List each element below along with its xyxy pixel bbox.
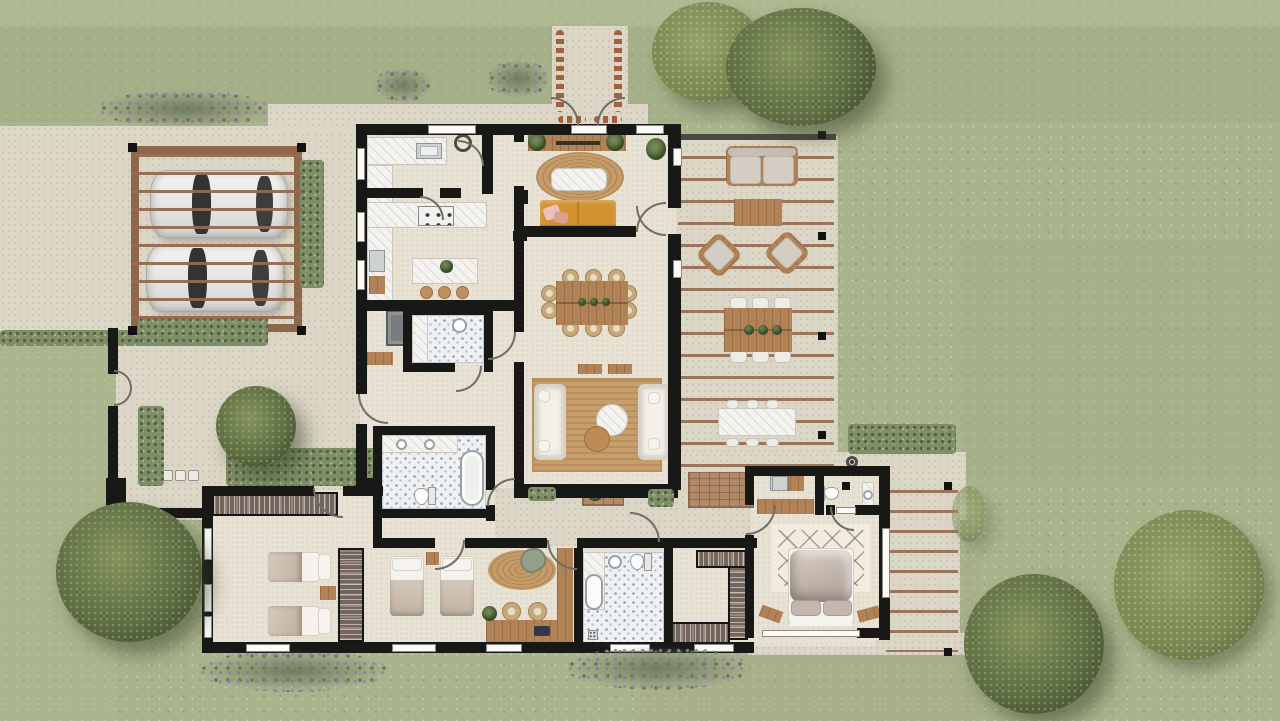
- window: [204, 584, 212, 612]
- tree-courtyard: [216, 386, 296, 466]
- kitchen-sink-basin: [420, 146, 438, 156]
- shower-drain: [588, 630, 598, 640]
- window: [486, 644, 522, 652]
- wall-master-left-a: [745, 466, 754, 505]
- sofa-split: [577, 202, 579, 228]
- prep-sink: [369, 250, 385, 272]
- wall-wingtop-r1: [373, 538, 435, 548]
- deck-coffee-table: [734, 199, 782, 226]
- sofa-pillow: [538, 440, 550, 452]
- window: [673, 260, 682, 278]
- bath2-tub: [585, 574, 603, 610]
- wall-bath1-right-a: [486, 426, 495, 490]
- bath1-vanity: [382, 435, 458, 453]
- wall-bath1-left: [373, 426, 382, 518]
- deck-bar-table: [718, 408, 796, 436]
- window: [204, 616, 212, 638]
- carport-pergola-slats: [131, 154, 302, 326]
- wall-x515-low-b: [514, 362, 524, 490]
- wall-wingtop-r3: [577, 538, 757, 548]
- nook-chair: [502, 602, 521, 621]
- lounge-corner-plant: [646, 138, 666, 160]
- wall-bath2-right: [664, 548, 673, 648]
- lavender-driveway: [98, 90, 270, 128]
- wood-bench: [578, 364, 602, 374]
- bar-stool: [726, 438, 739, 447]
- bed1-blanket: [268, 552, 302, 582]
- front-door: [571, 125, 607, 134]
- window: [428, 125, 476, 134]
- round-side-table: [584, 426, 610, 452]
- wc-basin: [863, 490, 873, 500]
- master-pillow: [791, 600, 821, 616]
- bed1-pillow: [318, 554, 331, 580]
- table-plant: [578, 298, 586, 306]
- wall-closet-master: [745, 548, 754, 638]
- island-stool: [438, 286, 451, 299]
- island-stool: [420, 286, 433, 299]
- console-slot: [556, 141, 600, 145]
- master-closet-bottom: [668, 622, 730, 644]
- bath1-basin: [396, 439, 407, 450]
- tree-southeast-1: [964, 574, 1104, 714]
- ac-unit: [175, 470, 186, 481]
- window: [204, 528, 212, 560]
- wall-lounge-bottom: [520, 226, 636, 237]
- laundry-sink: [772, 476, 788, 491]
- deck-sofa-back: [728, 148, 796, 156]
- tree-southeast-2: [1114, 510, 1264, 660]
- master-pillow: [823, 600, 852, 616]
- wood-shelf: [369, 276, 385, 294]
- powder-marble: [412, 315, 428, 363]
- tree-southwest: [56, 502, 202, 642]
- bar-stool: [766, 438, 779, 447]
- lavender-south-1: [198, 650, 388, 692]
- master-slider-window: [882, 528, 890, 598]
- wall-scullery-a: [363, 188, 423, 198]
- wall-kitchen-right: [514, 186, 524, 314]
- master-planter: [848, 424, 956, 454]
- table-plant: [602, 298, 610, 306]
- wall-master-top: [751, 466, 890, 476]
- wall-x515-low-a: [514, 314, 524, 332]
- wall-notch-2: [513, 231, 527, 241]
- window: [357, 148, 365, 180]
- outdoor-shower-head: [850, 460, 854, 464]
- side-deck-slats: [886, 490, 958, 652]
- carport-post: [128, 326, 137, 335]
- island-plant: [440, 260, 453, 273]
- window: [673, 148, 682, 166]
- bed2-pillow: [318, 608, 331, 634]
- lounge-coffee-table: [551, 168, 607, 191]
- bed4-blanket: [440, 580, 474, 616]
- deck-post: [818, 131, 826, 139]
- court-bed-left: [138, 406, 164, 486]
- wall-scullery-b: [440, 188, 461, 198]
- master-bed-foot: [790, 616, 852, 626]
- wall-bath1-top: [373, 426, 495, 435]
- grass-band-top: [0, 0, 1280, 26]
- nook-laptop: [534, 626, 550, 636]
- deck-post: [818, 431, 826, 439]
- hall-bench: [367, 352, 393, 365]
- master-patio-slider: [762, 630, 860, 637]
- carport-post: [297, 143, 306, 152]
- bed3-blanket: [390, 580, 424, 616]
- window: [392, 644, 436, 652]
- window: [357, 212, 365, 242]
- bar-stool: [746, 438, 759, 447]
- wall-powder-bottom: [403, 363, 455, 372]
- deck-top-beam: [676, 134, 836, 140]
- wall-court-left-a: [108, 328, 118, 374]
- nook-chair: [528, 602, 547, 621]
- wall-planter-1: [528, 487, 556, 501]
- deck-post: [818, 232, 826, 240]
- powder-basin: [452, 318, 467, 333]
- tree-entry-right: [726, 8, 876, 126]
- carport-post: [128, 143, 137, 152]
- wall-right-upper: [668, 124, 681, 208]
- wall-powder-top: [403, 306, 493, 315]
- closet-divider: [338, 548, 364, 642]
- side-deck-post: [944, 648, 952, 656]
- window: [636, 125, 664, 134]
- lavender-south-2: [566, 646, 750, 690]
- grass-patch-right: [960, 240, 1280, 480]
- deck-sofa-cushion: [763, 156, 794, 184]
- bath2-toilet-tank: [644, 553, 652, 571]
- bath1-toilet-tank: [428, 487, 436, 505]
- island-stool: [456, 286, 469, 299]
- master-closet-top: [696, 550, 750, 568]
- wood-bench: [608, 364, 632, 374]
- outdoor-table-plant: [758, 325, 768, 335]
- carport-beam-top: [131, 146, 302, 154]
- master-duvet: [790, 550, 852, 602]
- bed3-pillow: [392, 558, 422, 571]
- side-bush: [952, 486, 986, 542]
- carport-planting-strip: [300, 160, 324, 288]
- console-plant-left: [528, 133, 546, 151]
- ac-unit: [188, 470, 199, 481]
- bath1-basin: [424, 439, 435, 450]
- side-deck-post: [944, 482, 952, 490]
- outdoor-table-plant: [772, 325, 782, 335]
- wall-wing-top-b: [343, 486, 383, 496]
- wall-notch-1: [514, 190, 528, 204]
- wall-bath1-bottom: [373, 509, 495, 518]
- wall-master-left-b: [745, 535, 754, 548]
- table-plant: [590, 298, 598, 306]
- lavender-walk-right: [486, 60, 550, 98]
- wall-court-right-up: [356, 356, 367, 394]
- wall-vestibule: [482, 124, 493, 194]
- wall-x515-stub: [514, 124, 524, 142]
- bath1-tub-inner: [465, 456, 479, 500]
- laundry-board: [790, 476, 804, 491]
- wall-master-bottom: [857, 628, 890, 638]
- outdoor-table-plant: [744, 325, 754, 335]
- lavender-walk-left: [374, 68, 432, 102]
- window: [357, 260, 365, 290]
- bath2-basin: [608, 555, 622, 569]
- deck-post: [818, 332, 826, 340]
- wall-wing-top-a: [202, 486, 314, 496]
- side-deck-post: [842, 482, 850, 490]
- carport-post: [297, 326, 306, 335]
- wall-planter-2: [648, 489, 674, 507]
- nightstand: [320, 586, 336, 600]
- wall-wingtop-r2: [465, 538, 547, 548]
- nook-plant: [482, 606, 497, 621]
- floor-plan-canvas: [0, 0, 1280, 721]
- console-plant-right: [606, 133, 624, 151]
- pink-pillow-2: [553, 211, 569, 224]
- sofa-pillow: [648, 392, 660, 404]
- deck-sofa-cushion: [730, 156, 761, 184]
- bed2-blanket: [268, 606, 302, 636]
